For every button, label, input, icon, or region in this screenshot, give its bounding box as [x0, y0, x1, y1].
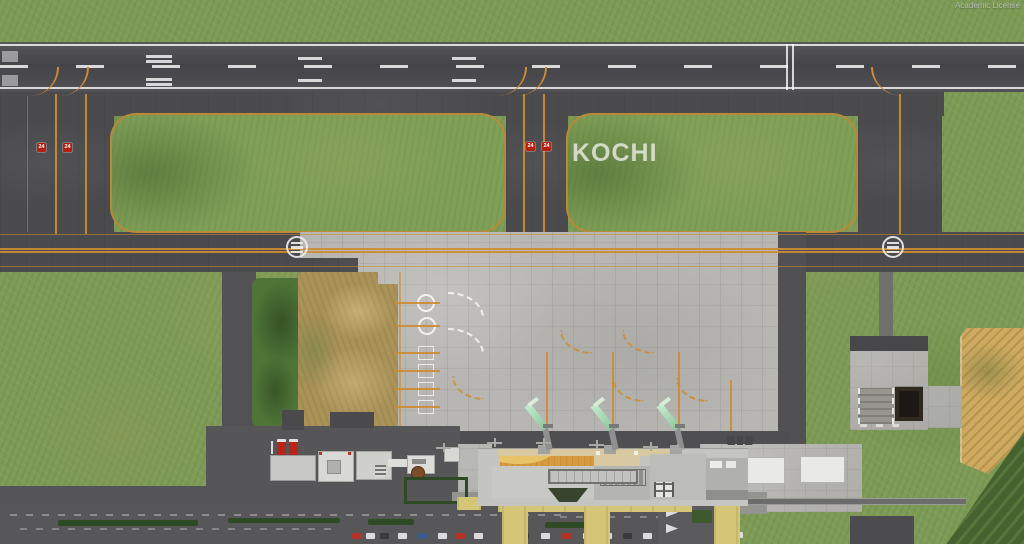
- runway-intersection-line: [786, 44, 788, 90]
- small-aircraft: [487, 438, 502, 447]
- fire-truck: [277, 439, 286, 455]
- gse-road-vertical: [222, 272, 256, 430]
- stand-leadin-line: [396, 406, 440, 408]
- stand-leadin-line: [396, 370, 440, 372]
- hedge-strip: [58, 520, 198, 526]
- fire-truck: [289, 439, 298, 455]
- taxi-lane-line: [543, 94, 545, 234]
- fire-station: [270, 455, 316, 481]
- stand-centerline: [678, 352, 680, 432]
- tdz-marking: [146, 78, 172, 81]
- taxi-lane-line: [899, 94, 901, 234]
- tdz-marking: [298, 79, 322, 82]
- stand-centerline: [546, 352, 548, 432]
- stand-leadin-line: [396, 325, 440, 327]
- taxiway-centerline: [0, 251, 1024, 253]
- runway-sign-24: 24: [37, 143, 46, 152]
- runway-edge-line-top: [0, 44, 1024, 46]
- wing-lower-band: [706, 490, 748, 500]
- taxiway-edge-line: [0, 266, 1024, 267]
- window-grid: [654, 482, 674, 497]
- traffic-island: [692, 510, 712, 523]
- apron-east-taxilane: [778, 232, 806, 444]
- hold-symbol-bar: [291, 246, 303, 249]
- small-aircraft: [536, 438, 551, 447]
- runway-threshold-block: [2, 51, 18, 62]
- parked-car: [352, 533, 361, 539]
- tdz-marking: [146, 55, 172, 58]
- dark-pavement-patch: [330, 412, 374, 428]
- parked-car: [438, 533, 447, 539]
- roof-unit: [327, 460, 341, 474]
- lane-dashes: [10, 514, 570, 516]
- terminal-east-wing: [706, 458, 748, 500]
- chevron-marking: [666, 524, 678, 533]
- roof-unit: [726, 461, 736, 468]
- runway-threshold-block: [2, 75, 18, 86]
- runway-sign-24: 24: [542, 142, 551, 151]
- parked-car: [366, 533, 375, 539]
- taxiway-connector-left: [0, 92, 114, 234]
- terminal-annex: [650, 454, 706, 500]
- taxi-lane-line: [55, 94, 57, 234]
- jet-bridge-3-rotunda: [675, 424, 685, 428]
- taxiway-centerline: [0, 248, 1024, 250]
- hedge-strip: [368, 519, 414, 525]
- roof-unit: [412, 459, 426, 464]
- operations-building: [318, 451, 354, 482]
- parked-car: [474, 533, 483, 539]
- tdz-marking: [452, 79, 476, 82]
- stand-leadin-line: [396, 352, 440, 354]
- hold-symbol-bar: [291, 251, 303, 253]
- dark-roof-building: [895, 386, 923, 421]
- cargo-building: [356, 451, 392, 480]
- dark-pavement-patch: [282, 410, 304, 430]
- grass-island-west: [110, 113, 506, 233]
- airport-ground-label: KOCHI: [572, 139, 658, 168]
- ground-vehicle-train: [727, 436, 753, 445]
- stand-centerline: [612, 352, 614, 432]
- parked-car: [643, 533, 652, 539]
- hold-symbol-bar: [887, 246, 899, 249]
- small-aircraft: [670, 444, 685, 453]
- service-road-to-pad: [879, 272, 893, 338]
- hold-symbol-bar: [887, 242, 899, 244]
- taxi-lane-line: [523, 94, 525, 234]
- small-aircraft: [643, 442, 658, 451]
- terminal-skylight-frame: [548, 469, 638, 484]
- runway-intersection-line: [792, 44, 794, 90]
- roof-corner-marker: [348, 452, 351, 455]
- pad-vehicle-row: [860, 424, 904, 427]
- taxiway-edge-line: [0, 234, 1024, 235]
- grass-island-east: KOCHI: [566, 113, 858, 233]
- maintenance-pad-asphalt: [850, 336, 928, 351]
- remote-pad: [928, 386, 962, 428]
- parking-pad-dark: [850, 516, 914, 544]
- tdz-marking: [146, 60, 172, 63]
- parked-car: [418, 533, 427, 539]
- hedge-strip: [545, 522, 585, 528]
- hedge-strip: [228, 518, 340, 523]
- small-aircraft: [589, 440, 604, 449]
- parked-car: [456, 533, 465, 539]
- airport-scenery-view: KOCHI 24 24 24 24: [0, 0, 1024, 544]
- taxiway-hold-symbol: [286, 236, 308, 258]
- runway-sign-24: 24: [63, 143, 72, 152]
- lane-dashes: [20, 528, 340, 530]
- hold-symbol-bar: [887, 251, 899, 253]
- parked-car: [541, 533, 550, 539]
- taxiway-edge-line: [27, 96, 28, 232]
- dark-roof-opening: [899, 391, 919, 417]
- taxiway-hold-symbol: [882, 236, 904, 258]
- tdz-marking: [298, 57, 322, 60]
- parked-car: [623, 533, 632, 539]
- runway-sign-24: 24: [526, 142, 535, 151]
- stand-leadin-line: [396, 388, 440, 390]
- parked-car: [562, 533, 571, 539]
- jet-bridge-1-rotunda: [543, 424, 553, 428]
- roof-unit: [710, 461, 722, 468]
- license-watermark: Academic License: [955, 1, 1020, 10]
- taxiway-connector-center: [506, 92, 568, 234]
- parked-car: [380, 533, 389, 539]
- light-pole: [271, 441, 273, 454]
- taxi-lane-line: [85, 94, 87, 234]
- hold-symbol-bar: [291, 242, 303, 244]
- small-aircraft: [436, 443, 451, 452]
- roof-dot: [634, 451, 638, 455]
- jet-bridge-2-rotunda: [609, 424, 619, 428]
- stand-leadin-line: [396, 302, 440, 304]
- stand-centerline: [730, 380, 732, 432]
- roof-vent-grid: [375, 465, 386, 477]
- tdz-marking: [146, 83, 172, 86]
- parked-car: [398, 533, 407, 539]
- roof-corner-marker: [319, 452, 322, 455]
- white-stand-building: [800, 456, 845, 483]
- dirt-patch: [298, 272, 398, 430]
- tdz-marking: [452, 57, 476, 60]
- roof-dot: [596, 451, 600, 455]
- building-corridor: [388, 459, 408, 467]
- hangar-building: [858, 388, 894, 424]
